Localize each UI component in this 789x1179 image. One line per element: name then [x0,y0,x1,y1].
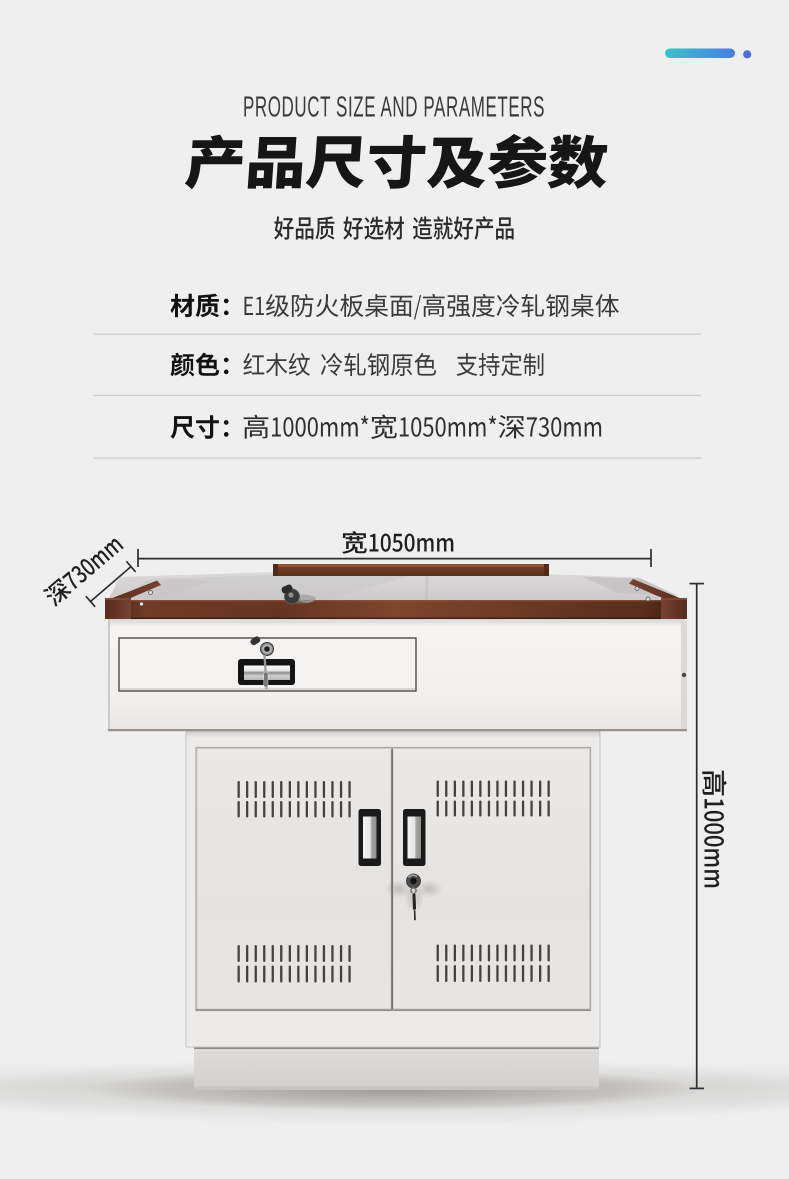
svg-text:PRODUCT SIZE AND PARAMETERS: PRODUCT SIZE AND PARAMETERS [243,92,545,124]
